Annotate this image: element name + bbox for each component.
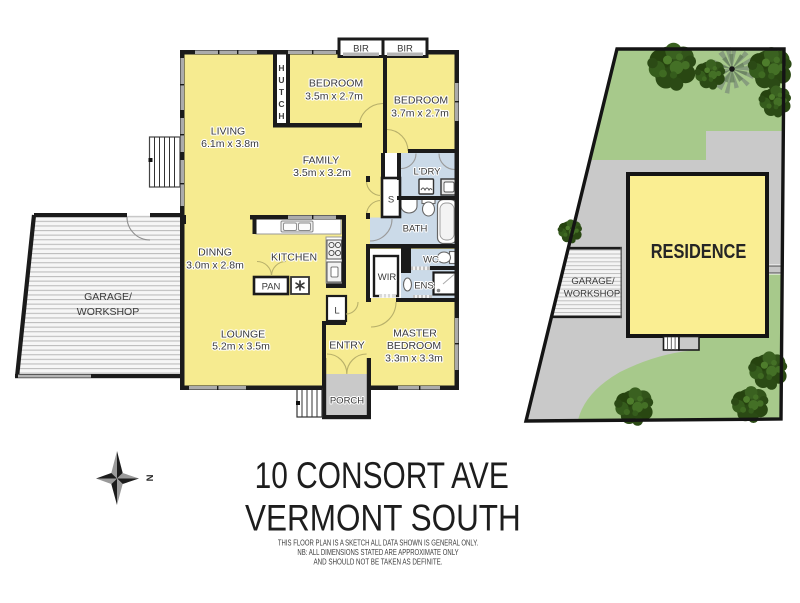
svg-text:WC: WC (423, 255, 439, 266)
svg-text:NB: ALL DIMENSIONS STATED ARE: NB: ALL DIMENSIONS STATED ARE APPROXIMAT… (297, 550, 458, 558)
svg-text:S: S (388, 195, 394, 206)
svg-text:BEDROOM: BEDROOM (394, 95, 448, 107)
svg-text:T: T (279, 87, 285, 97)
svg-text:BIR: BIR (353, 44, 369, 55)
svg-text:PAN: PAN (262, 282, 281, 293)
svg-text:3.3m x 3.3m: 3.3m x 3.3m (385, 353, 443, 365)
svg-text:BEDROOM: BEDROOM (309, 78, 363, 90)
svg-text:L: L (334, 306, 339, 317)
svg-text:THIS FLOOR PLAN IS A SKETCH AL: THIS FLOOR PLAN IS A SKETCH ALL DATA SHO… (278, 540, 478, 548)
svg-text:N: N (144, 475, 155, 482)
svg-text:KITCHEN: KITCHEN (271, 252, 317, 264)
svg-text:3.0m x 2.8m: 3.0m x 2.8m (186, 260, 244, 272)
svg-text:GARAGE/: GARAGE/ (571, 276, 615, 287)
svg-text:U: U (278, 75, 284, 85)
svg-text:C: C (278, 99, 284, 109)
svg-text:BATH: BATH (403, 224, 428, 235)
svg-text:ENTRY: ENTRY (329, 340, 364, 352)
svg-text:3.5m x 3.2m: 3.5m x 3.2m (293, 167, 351, 179)
svg-text:H: H (278, 63, 284, 73)
svg-text:3.7m x 2.7m: 3.7m x 2.7m (391, 108, 449, 120)
svg-text:10 CONSORT AVE: 10 CONSORT AVE (255, 456, 509, 497)
svg-text:GARAGE/: GARAGE/ (84, 291, 132, 303)
svg-text:LOUNGE: LOUNGE (221, 329, 265, 341)
svg-text:RESIDENCE: RESIDENCE (651, 239, 747, 262)
svg-text:ENS: ENS (414, 281, 434, 292)
svg-text:VERMONT SOUTH: VERMONT SOUTH (245, 498, 521, 539)
svg-text:5.2m x 3.5m: 5.2m x 3.5m (212, 341, 270, 353)
svg-text:PORCH: PORCH (330, 396, 364, 407)
svg-text:MASTER: MASTER (393, 328, 437, 340)
svg-text:WORKSHOP: WORKSHOP (564, 289, 620, 300)
svg-text:WORKSHOP: WORKSHOP (77, 306, 139, 318)
svg-text:LIVING: LIVING (211, 126, 245, 138)
svg-text:WIR: WIR (378, 272, 397, 283)
svg-text:L'DRY: L'DRY (414, 167, 442, 178)
svg-text:H: H (278, 111, 284, 121)
svg-text:6.1m x 3.8m: 6.1m x 3.8m (201, 138, 259, 150)
svg-text:3.5m x 2.7m: 3.5m x 2.7m (305, 91, 363, 103)
svg-text:AND SHOULD NOT BE TAKEN AS DEF: AND SHOULD NOT BE TAKEN AS DEFINITE. (313, 558, 442, 567)
svg-text:BIR: BIR (397, 44, 413, 55)
svg-text:FAMILY: FAMILY (303, 155, 340, 167)
svg-text:DINNG: DINNG (198, 247, 232, 259)
svg-text:BEDROOM: BEDROOM (387, 340, 441, 352)
